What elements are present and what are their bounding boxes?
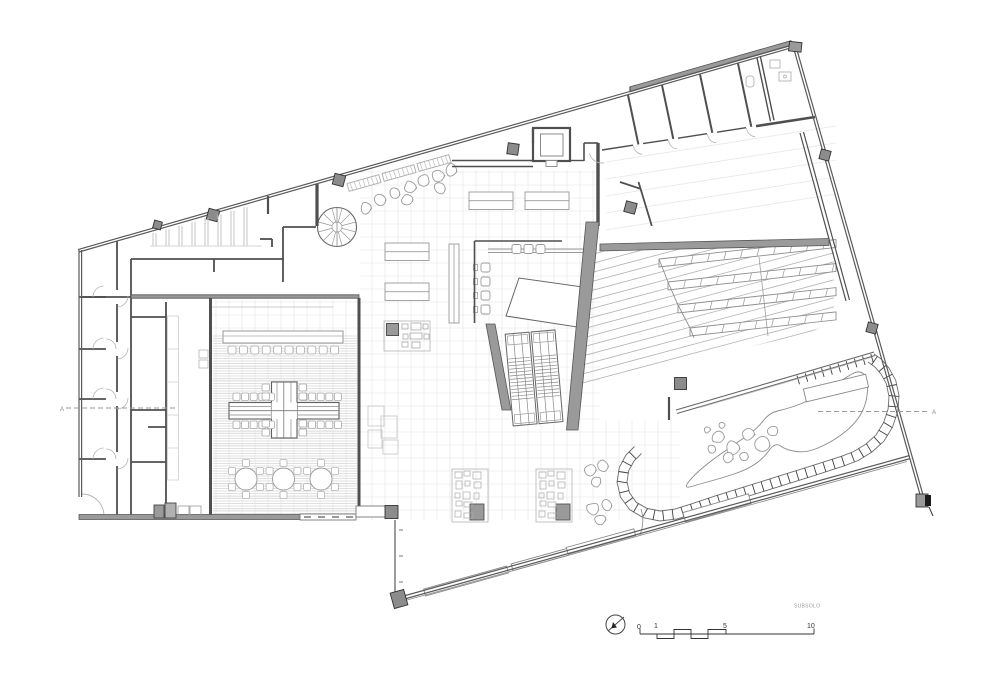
svg-text:A: A	[932, 410, 936, 416]
svg-text:0: 0	[637, 624, 641, 631]
svg-text:5: 5	[723, 623, 727, 630]
svg-text:10: 10	[807, 623, 815, 630]
svg-text:SUBSOLO: SUBSOLO	[794, 604, 820, 610]
svg-text:A: A	[60, 407, 64, 413]
svg-text:1: 1	[654, 623, 658, 630]
